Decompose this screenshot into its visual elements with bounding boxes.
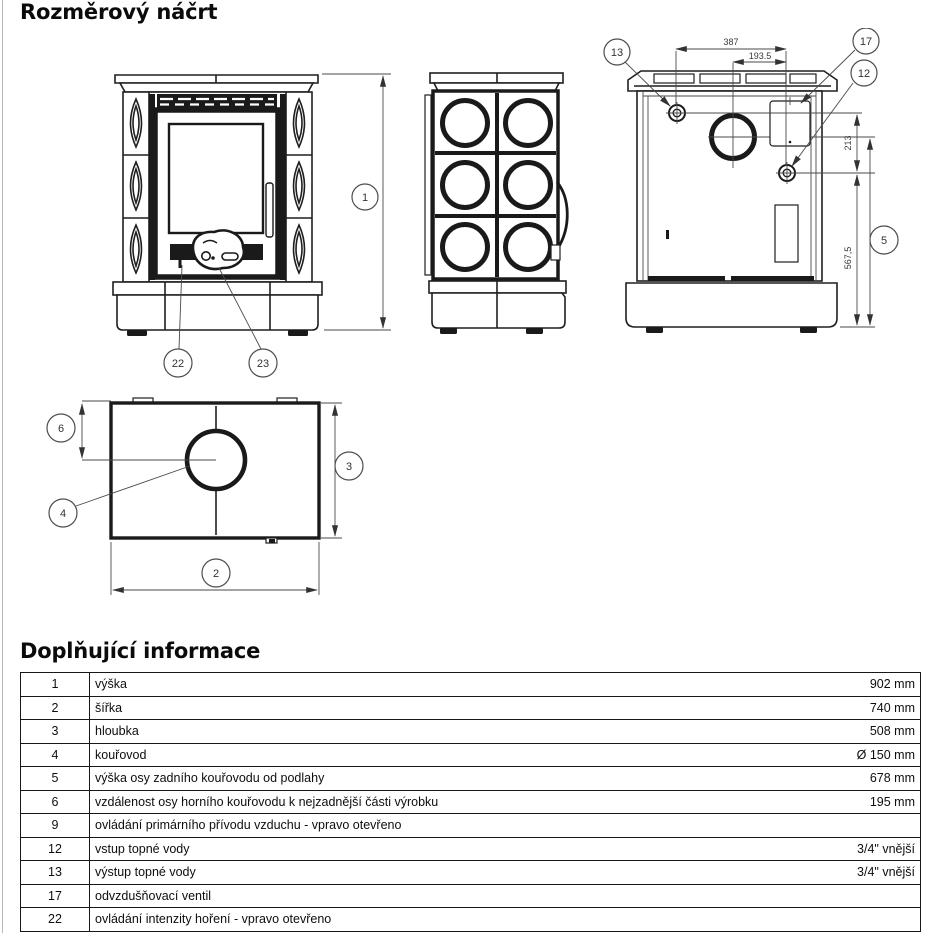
svg-text:387: 387 <box>723 37 738 47</box>
row-value: 678 mm <box>780 767 921 791</box>
row-description: výška <box>90 673 781 697</box>
svg-text:23: 23 <box>257 358 269 370</box>
row-description: výška osy zadního kouřovodu od podlahy <box>90 767 781 791</box>
balloon-6: 6 <box>47 414 75 442</box>
row-number: 13 <box>21 861 90 885</box>
table-row: 9 ovládání primárního přívodu vzduchu - … <box>21 814 921 838</box>
row-description: výstup topné vody <box>90 861 781 885</box>
row-number: 3 <box>21 720 90 744</box>
balloon-23: 23 <box>249 349 277 377</box>
row-value: 3/4" vnější <box>780 861 921 885</box>
page-title: Rozměrový náčrt <box>20 0 217 24</box>
table-row: 22 ovládání intenzity hoření - vpravo ot… <box>21 908 921 932</box>
vent-valve-plate <box>770 101 810 146</box>
svg-text:17: 17 <box>860 36 872 48</box>
balloon-1: 1 <box>352 184 378 210</box>
svg-text:567,5: 567,5 <box>843 247 853 270</box>
row-number: 2 <box>21 696 90 720</box>
svg-text:5: 5 <box>881 235 887 247</box>
svg-text:22: 22 <box>172 358 184 370</box>
row-number: 1 <box>21 673 90 697</box>
balloon-12: 12 <box>851 60 877 86</box>
row-value: 902 mm <box>780 673 921 697</box>
row-description: kouřovod <box>90 743 781 767</box>
info-table: 1 výška 902 mm 2 šířka 740 mm 3 hloubka … <box>20 672 921 932</box>
balloon-2: 2 <box>202 559 230 587</box>
row-value: 740 mm <box>780 696 921 720</box>
row-description: vstup topné vody <box>90 837 781 861</box>
row-value <box>780 814 921 838</box>
balloon-4: 4 <box>49 499 77 527</box>
svg-text:6: 6 <box>58 423 64 435</box>
table-row: 2 šířka 740 mm <box>21 696 921 720</box>
row-value: Ø 150 mm <box>780 743 921 767</box>
balloon-22: 22 <box>164 349 192 377</box>
air-lever <box>179 260 182 268</box>
row-description: šířka <box>90 696 781 720</box>
table-row: 13 výstup topné vody 3/4" vnější <box>21 861 921 885</box>
svg-text:1: 1 <box>362 192 368 204</box>
row-number: 22 <box>21 908 90 932</box>
door-handle <box>266 183 273 237</box>
row-description: vzdálenost osy horního kouřovodu k nejza… <box>90 790 781 814</box>
svg-text:2: 2 <box>213 568 219 580</box>
dimensional-drawing: 1 22 23 <box>0 28 935 610</box>
row-number: 6 <box>21 790 90 814</box>
row-value <box>780 884 921 908</box>
row-value <box>780 908 921 932</box>
dim-193-5: 193.5 <box>733 51 786 62</box>
row-number: 5 <box>21 767 90 791</box>
svg-text:213: 213 <box>843 135 853 150</box>
svg-text:12: 12 <box>858 68 870 80</box>
table-row: 5 výška osy zadního kouřovodu od podlahy… <box>21 767 921 791</box>
balloon-13: 13 <box>604 39 630 65</box>
row-description: ovládání primárního přívodu vzduchu - vp… <box>90 814 781 838</box>
balloon-5: 5 <box>870 226 898 254</box>
rear-lower-opening <box>775 205 798 262</box>
row-number: 17 <box>21 884 90 908</box>
dim-567-5: 567,5 <box>843 175 857 325</box>
svg-text:3: 3 <box>346 461 352 473</box>
door-glass <box>169 124 263 233</box>
front-view: 1 22 23 <box>113 74 391 377</box>
manual-page: Rozměrový náčrt <box>0 0 935 933</box>
table-row: 12 vstup topné vody 3/4" vnější <box>21 837 921 861</box>
dim-top-flue-distance <box>82 401 111 458</box>
row-number: 9 <box>21 814 90 838</box>
brand-emblem <box>193 230 244 268</box>
svg-text:13: 13 <box>611 47 623 59</box>
svg-text:193.5: 193.5 <box>749 51 772 61</box>
top-view: 6 4 3 <box>47 398 363 595</box>
balloon-17: 17 <box>853 28 879 54</box>
table-row: 6 vzdálenost osy horního kouřovodu k nej… <box>21 790 921 814</box>
svg-text:4: 4 <box>60 508 66 520</box>
dim-213: 213 <box>843 115 857 171</box>
table-row: 1 výška 902 mm <box>21 673 921 697</box>
side-view <box>425 73 567 334</box>
row-description: ovládání intenzity hoření - vpravo otevř… <box>90 908 781 932</box>
row-number: 12 <box>21 837 90 861</box>
row-value: 195 mm <box>780 790 921 814</box>
row-description: odvzdušňovací ventil <box>90 884 781 908</box>
row-description: hloubka <box>90 720 781 744</box>
table-row: 3 hloubka 508 mm <box>21 720 921 744</box>
back-view: 387 193.5 213 567,5 5 <box>604 28 898 333</box>
row-value: 3/4" vnější <box>780 837 921 861</box>
table-row: 4 kouřovod Ø 150 mm <box>21 743 921 767</box>
row-value: 508 mm <box>780 720 921 744</box>
table-row: 17 odvzdušňovací ventil <box>21 884 921 908</box>
vent-grille <box>157 94 277 109</box>
balloon-3: 3 <box>335 452 363 480</box>
row-number: 4 <box>21 743 90 767</box>
info-section-title: Doplňující informace <box>20 639 260 663</box>
